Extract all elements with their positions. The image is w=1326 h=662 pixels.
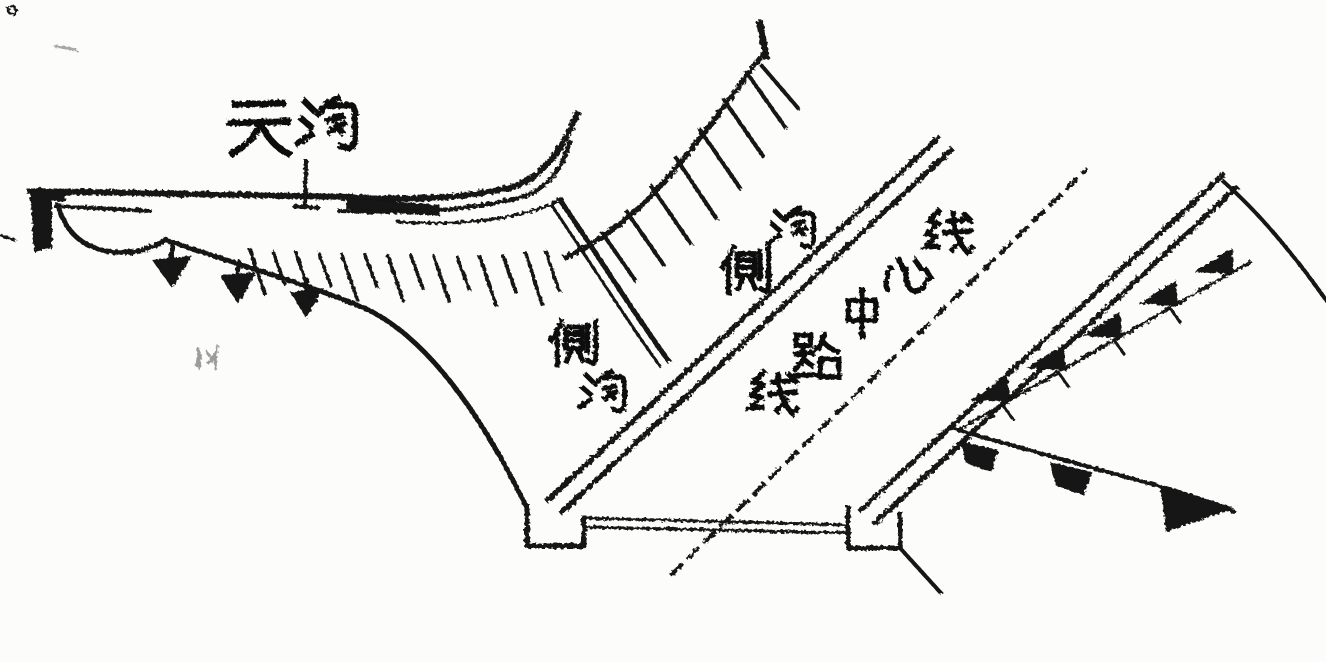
side-ditch-left-line [548, 138, 951, 512]
ditch-section-left [527, 506, 584, 546]
cut-face-front-edge [166, 240, 527, 508]
right-ditch-outer-stub [900, 548, 940, 592]
roadbed-edge-top [586, 518, 848, 525]
track-centerline-dashed [672, 170, 1086, 574]
ground-surface-left [30, 114, 577, 252]
far-slope [566, 24, 798, 280]
far-slope-crest-line [566, 54, 763, 257]
crest-flags-right [958, 248, 1250, 430]
tiangou-leader-line [295, 162, 318, 208]
scanned-cutting-drainage-diagram: 天沟 侧沟 侧沟 线路中心线 [0, 0, 1326, 662]
label-cegou-lower [551, 321, 624, 410]
label-tiangou [230, 98, 355, 153]
ditch-section-right [848, 508, 900, 548]
ground-line-back-right [1224, 182, 1326, 300]
side-ditch-right-line [861, 175, 1236, 523]
diagram-canvas [0, 0, 1326, 662]
ground-edge-right [952, 182, 1326, 532]
roadbed-edge-bottom [586, 527, 848, 533]
label-faint-mark [197, 347, 218, 369]
label-cegou-upper [722, 208, 813, 293]
